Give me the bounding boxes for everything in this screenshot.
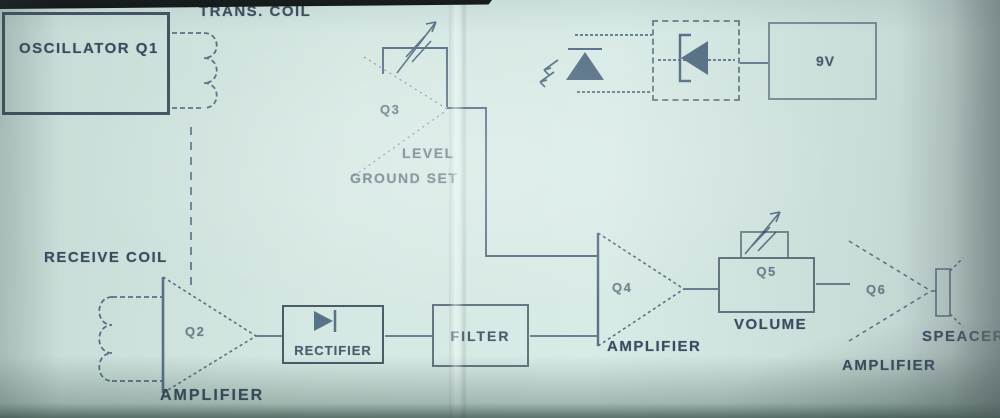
trans-coil-icon bbox=[172, 33, 217, 108]
led-icon bbox=[540, 35, 652, 92]
filter-box: FILTER bbox=[432, 304, 529, 367]
q4-label: Q4 bbox=[612, 280, 632, 295]
q3-pot-icon bbox=[397, 22, 436, 73]
q6-amplifier-triangle bbox=[849, 241, 931, 341]
scan-right-shadow bbox=[952, 0, 1000, 418]
scanned-block-diagram: OSCILLATOR Q1 TRANS. COIL Q3 LEVEL GROUN… bbox=[0, 0, 1000, 418]
level-label: LEVEL bbox=[402, 145, 455, 161]
volume-box: Q5 bbox=[718, 257, 815, 313]
q2-label: Q2 bbox=[185, 324, 205, 339]
q4-amplifier-label: AMPLIFIER bbox=[607, 338, 701, 355]
q5-label: Q5 bbox=[720, 264, 813, 279]
ground-set-label: GROUND SET bbox=[350, 170, 458, 186]
q2-amplifier-triangle bbox=[163, 277, 256, 393]
q6-amplifier-label: AMPLIFIER bbox=[842, 357, 936, 374]
q4-amplifier-triangle bbox=[598, 233, 684, 346]
oscillator-label: OSCILLATOR Q1 bbox=[19, 40, 159, 57]
q3-label: Q3 bbox=[380, 102, 400, 117]
volume-label: VOLUME bbox=[734, 316, 807, 333]
volume-pot-box bbox=[740, 231, 789, 257]
q6-label: Q6 bbox=[866, 282, 886, 297]
rectifier-label: RECTIFIER bbox=[284, 343, 382, 358]
diode-box bbox=[652, 20, 740, 101]
rectifier-box: RECTIFIER bbox=[282, 305, 384, 364]
oscillator-box: OSCILLATOR Q1 bbox=[2, 12, 170, 115]
q3-to-q4-wire bbox=[447, 108, 598, 256]
scan-crease bbox=[449, 0, 467, 418]
battery-box: 9V bbox=[768, 22, 877, 100]
receive-coil-label: RECEIVE COIL bbox=[44, 249, 168, 266]
battery-label: 9V bbox=[816, 53, 835, 69]
receive-coil-icon bbox=[99, 297, 163, 381]
scan-bottom-shadow bbox=[0, 403, 1000, 418]
